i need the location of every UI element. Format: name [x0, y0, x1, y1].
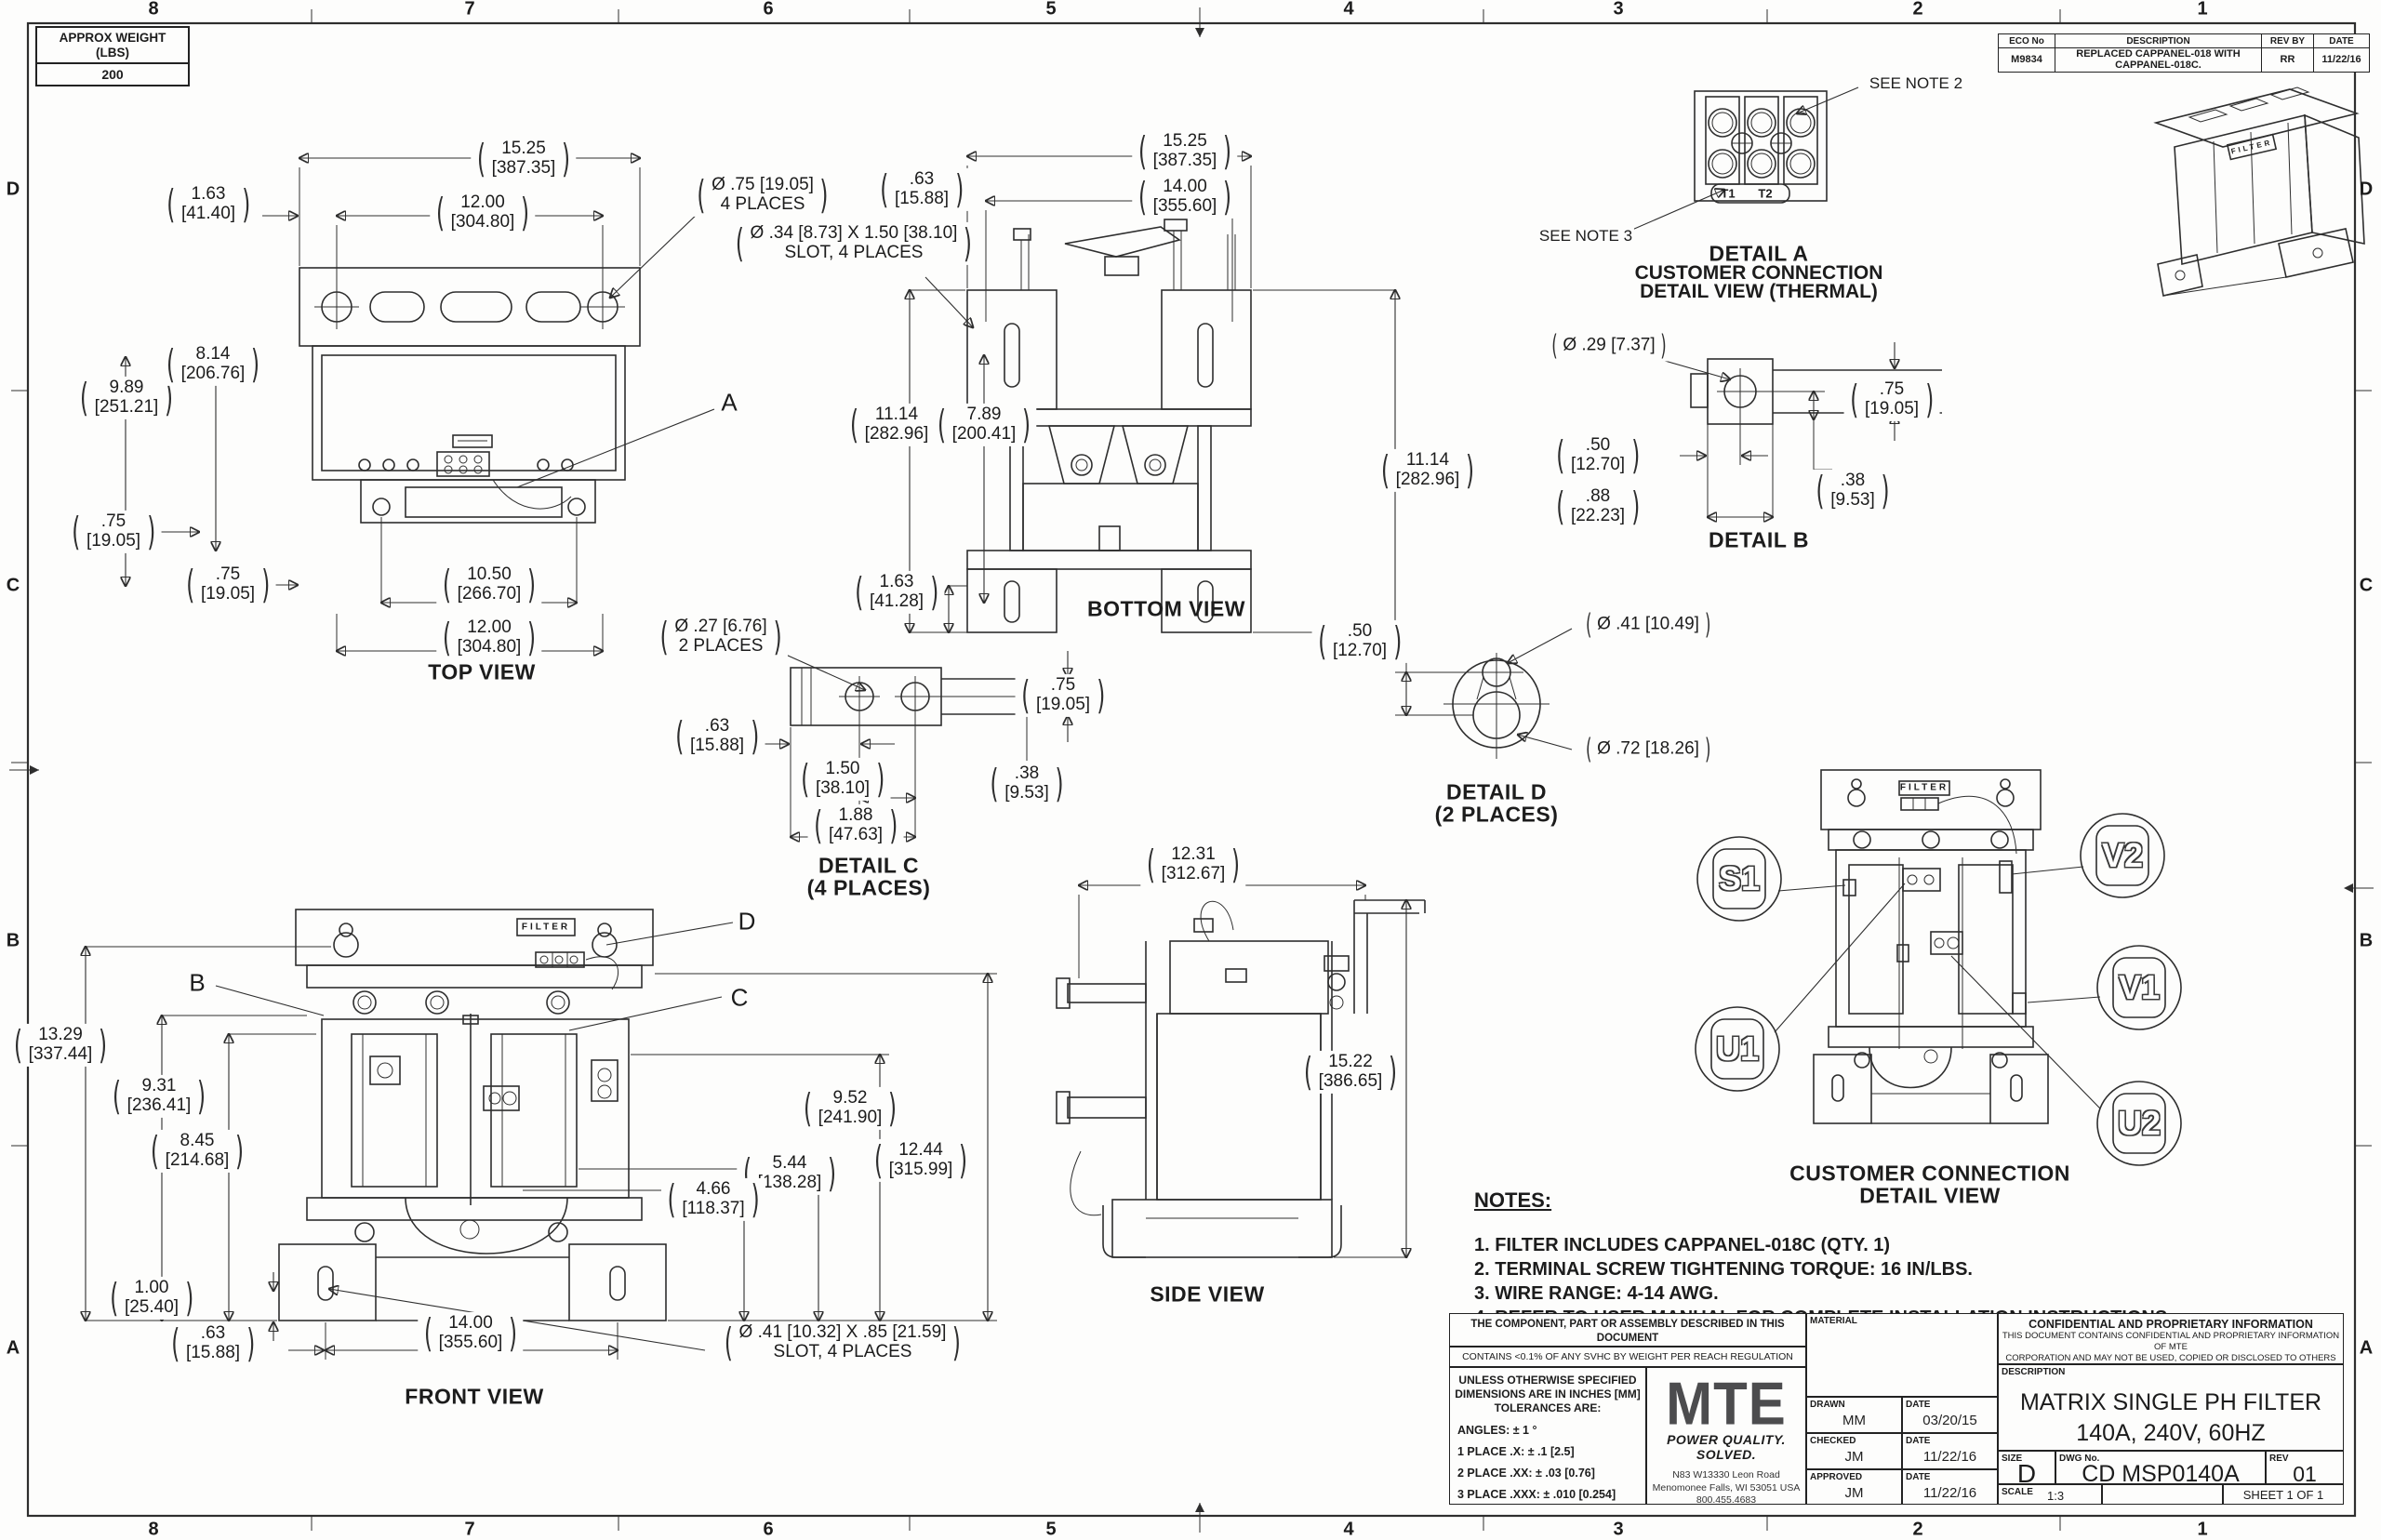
mte-logo: MTE — [1647, 1375, 1805, 1433]
eco-desc: REPLACED CAPPANEL-018 WITH CAPPANEL-018C… — [2055, 48, 2262, 73]
title-block: THE COMPONENT, PART OR ASSEMBLY DESCRIBE… — [1449, 1313, 2344, 1505]
dwg-cell: DWG No. CD MSP0140A — [2055, 1451, 2266, 1484]
filter-nameplate-ccdv: FILTER — [1900, 783, 1949, 793]
callout-dia29: (Ø .29 [7.37]) — [1547, 331, 1672, 362]
description-line1: MATRIX SINGLE PH FILTER — [1999, 1387, 2343, 1418]
dim-top-bolt-span: (10.50[266.70]) — [436, 564, 541, 606]
section-label-d: D — [736, 908, 759, 936]
weight-unit: (LBS) — [37, 46, 188, 60]
dim-bottom-slot-span: (14.00[355.60]) — [1132, 176, 1237, 219]
callout-hole-4places: (Ø .75 [19.05]4 PLACES) — [691, 174, 835, 217]
eco-no: M9834 — [1998, 48, 2055, 73]
isometric-view-drawing — [2156, 87, 2364, 296]
zone-col: 2 — [1912, 1520, 1922, 1540]
zone-row: A — [7, 1338, 20, 1360]
balloon-v1: V1 — [2119, 968, 2160, 1007]
dim-detd-50: (.50[12.70]) — [1312, 620, 1408, 663]
ccdv-title1: CUSTOMER CONNECTION — [1789, 1162, 2070, 1187]
dim-front-1329: (13.29[337.44]) — [7, 1024, 113, 1067]
zone-col: 1 — [2197, 0, 2207, 20]
dim-top-offset75b: (.75[19.05]) — [180, 564, 276, 606]
eco-revision-table: ECO No DESCRIPTION REV BY DATE M9834 REP… — [1998, 33, 2370, 73]
customer-connection-drawing — [1696, 770, 2181, 1165]
checked-cell: CHECKED JM — [1806, 1433, 1902, 1469]
approved-value: JM — [1807, 1485, 1901, 1501]
dim-front-1244: (12.44[315.99]) — [868, 1139, 973, 1182]
size-cell: SIZE D — [1998, 1451, 2055, 1484]
dim-front-100: (1.00[25.40]) — [104, 1277, 200, 1320]
dim-detc-63: (.63[15.88]) — [670, 715, 765, 758]
zone-col: 7 — [464, 0, 474, 20]
zone-col: 4 — [1343, 1520, 1353, 1540]
approved-date-cell: DATE 11/22/16 — [1902, 1469, 1998, 1505]
zone-col: 5 — [1045, 0, 1056, 20]
drawn-value: MM — [1807, 1413, 1901, 1428]
zone-row: C — [2360, 576, 2373, 597]
zone-col: 6 — [763, 1520, 773, 1540]
tol-1place: 1 PLACE .X: ± .1 [2.5] — [1457, 1445, 1645, 1458]
top-view-title: TOP VIEW — [428, 660, 536, 685]
eco-header-desc: DESCRIPTION — [2055, 33, 2262, 48]
description-line2: 140A, 240V, 60HZ — [1999, 1418, 2343, 1449]
detail-b-title: DETAIL B — [1709, 528, 1809, 553]
bottom-view-drawing — [910, 156, 1395, 632]
approved-cell: APPROVED JM — [1806, 1469, 1902, 1505]
balloon-s1: S1 — [1719, 859, 1760, 898]
dim-front-63: (.63[15.88]) — [166, 1322, 261, 1365]
notes-heading: NOTES: — [1474, 1188, 2173, 1213]
front-view-title: FRONT VIEW — [405, 1385, 543, 1410]
dim-side-1231: (12.31[312.67]) — [1140, 843, 1245, 886]
eco-date: 11/22/16 — [2314, 48, 2370, 73]
eco-header-revby: REV BY — [2262, 33, 2314, 48]
drawn-cell: DRAWN MM — [1806, 1397, 1902, 1433]
tol-2place: 2 PLACE .XX: ± .03 [0.76] — [1457, 1467, 1645, 1480]
eco-revby: RR — [2262, 48, 2314, 73]
dim-detc-150: (1.50[38.10]) — [795, 758, 891, 801]
callout-slot-4places: (Ø .34 [8.73] X 1.50 [38.10]SLOT, 4 PLAC… — [729, 222, 978, 265]
mte-address: N83 W13330 Leon Road Menomonee Falls, WI… — [1647, 1469, 1805, 1505]
dim-front-931: (9.31[236.41]) — [106, 1075, 211, 1118]
balloon-v2: V2 — [2102, 836, 2143, 875]
detail-c-sub: (4 PLACES) — [807, 876, 931, 901]
dim-top-depth2: (8.14[206.76]) — [160, 343, 265, 386]
note-item: 2. TERMINAL SCREW TIGHTENING TORQUE: 16 … — [1474, 1257, 2173, 1281]
dim-detb-50: (.50[12.70]) — [1550, 434, 1646, 477]
dim-bottom-foot: (1.63[41.28]) — [849, 571, 945, 614]
zone-row: B — [2360, 931, 2373, 952]
zone-row: D — [2360, 179, 2373, 201]
dim-front-1400: (14.00[355.60]) — [418, 1312, 523, 1355]
side-view-title: SIDE VIEW — [1150, 1282, 1264, 1308]
zone-row: A — [2360, 1338, 2373, 1360]
drawing-sheet: 8 7 6 5 4 3 2 1 8 7 6 5 4 3 2 1 D C B A … — [0, 0, 2381, 1540]
detail-b-drawing — [1639, 342, 1942, 517]
dim-detb-88: (.88[22.23]) — [1550, 485, 1646, 528]
dim-top-edge-offset: (1.63[41.40]) — [161, 183, 257, 226]
zone-col: 5 — [1045, 1520, 1056, 1540]
detail-d-sub: (2 PLACES) — [1435, 803, 1559, 828]
callout-dia27: (Ø .27 [6.76]2 PLACES) — [654, 616, 788, 658]
zone-col: 3 — [1613, 0, 1623, 20]
tolerance-block: UNLESS OTHERWISE SPECIFIED DIMENSIONS AR… — [1449, 1367, 1646, 1505]
sheet-cell: SHEET 1 OF 1 — [2223, 1484, 2344, 1505]
notes-block: NOTES: 1. FILTER INCLUDES CAPPANEL-018C … — [1474, 1188, 2173, 1330]
zone-col: 8 — [148, 0, 158, 20]
note-item: 3. WIRE RANGE: 4-14 AWG. — [1474, 1281, 2173, 1306]
drawn-date-cell: DATE 03/20/15 — [1902, 1397, 1998, 1433]
callout-front-slot: (Ø .41 [10.32] X .85 [21.59]SLOT, 4 PLAC… — [718, 1321, 967, 1364]
detail-c-title: DETAIL C — [818, 854, 919, 879]
weight-title: APPROX WEIGHT — [37, 31, 188, 46]
zone-col: 4 — [1343, 0, 1353, 20]
zone-col: 6 — [763, 0, 773, 20]
checked-value: JM — [1807, 1449, 1901, 1465]
tol-angles: ANGLES: ± 1 ° — [1457, 1424, 1645, 1437]
zone-row: C — [7, 576, 20, 597]
section-label-a: A — [718, 389, 739, 418]
zone-col: 8 — [148, 1520, 158, 1540]
size-value: D — [1999, 1459, 2055, 1484]
detail-d-drawing — [1395, 629, 1572, 759]
scale-value: 1:3 — [2047, 1489, 2064, 1503]
rev-value: 01 — [2267, 1462, 2343, 1484]
dim-top-offset75a: (.75[19.05]) — [66, 511, 162, 553]
dim-detc-75: (.75[19.05]) — [1016, 674, 1111, 717]
scale-cell: SCALE 1:3 — [1998, 1484, 2102, 1505]
tol-3place: 3 PLACE .XXX: ± .010 [0.254] — [1457, 1488, 1645, 1501]
rev-cell: REV 01 — [2266, 1451, 2344, 1484]
confidential-cell: CONFIDENTIAL AND PROPRIETARY INFORMATION… — [1998, 1313, 2344, 1364]
dim-bottom-slot-height: (7.89[200.41]) — [931, 404, 1036, 446]
dim-bottom-offset63: (.63[15.88]) — [874, 168, 970, 211]
material-cell: MATERIAL — [1806, 1313, 1998, 1397]
dim-top-hole-span: (12.00[304.80]) — [430, 192, 535, 234]
detail-a-drawing — [1626, 87, 1858, 232]
drawn-date: 03/20/15 — [1903, 1413, 1997, 1428]
dim-top-span2: (12.00[304.80]) — [436, 617, 541, 659]
see-note-2-label: SEE NOTE 2 — [1868, 74, 1964, 93]
zone-col: 2 — [1912, 0, 1922, 20]
dwg-number: CD MSP0140A — [2056, 1461, 2265, 1484]
rohs-statement: THE COMPONENT, PART OR ASSEMBLY DESCRIBE… — [1449, 1313, 1806, 1347]
dim-front-952: (9.52[241.90]) — [797, 1087, 902, 1130]
mte-logo-block: MTE POWER QUALITY. SOLVED. N83 W13330 Le… — [1646, 1367, 1806, 1505]
zone-row: B — [7, 931, 20, 952]
note-item: 1. FILTER INCLUDES CAPPANEL-018C (QTY. 1… — [1474, 1233, 2173, 1257]
reach-statement: CONTAINS <0.1% OF ANY SVHC BY WEIGHT PER… — [1449, 1347, 1806, 1367]
dim-detb-75: (.75[19.05]) — [1844, 378, 1940, 421]
dim-top-overall-width: (15.25[387.35]) — [471, 138, 576, 180]
checked-date: 11/22/16 — [1903, 1449, 1997, 1465]
dim-side-1522: (15.22[386.65]) — [1297, 1051, 1403, 1094]
balloon-u2: U2 — [2118, 1104, 2161, 1143]
checked-date-cell: DATE 11/22/16 — [1902, 1433, 1998, 1469]
zone-col: 7 — [464, 1520, 474, 1540]
eco-header-date: DATE — [2314, 33, 2370, 48]
bottom-view-title: BOTTOM VIEW — [1087, 597, 1245, 622]
dim-detb-38: (.38[9.53]) — [1810, 470, 1895, 512]
dim-bottom-overall: (15.25[387.35]) — [1132, 130, 1237, 173]
callout-dia72: (Ø .72 [18.26]) — [1580, 735, 1715, 765]
detail-a-sub2: DETAIL VIEW (THERMAL) — [1640, 281, 1878, 303]
description-cell: DESCRIPTION MATRIX SINGLE PH FILTER 140A… — [1998, 1364, 2344, 1451]
approx-weight-box: APPROX WEIGHT (LBS) 200 — [35, 26, 190, 86]
dim-front-845: (8.45[214.68]) — [144, 1130, 249, 1173]
section-label-c: C — [728, 984, 752, 1013]
balloon-u1: U1 — [1716, 1029, 1759, 1069]
callout-dia41: (Ø .41 [10.49]) — [1580, 610, 1715, 641]
see-note-3-label: SEE NOTE 3 — [1537, 227, 1634, 246]
dim-detc-188: (1.88[47.63]) — [808, 804, 904, 847]
eco-header-no: ECO No — [1998, 33, 2055, 48]
scale-spacer — [2102, 1484, 2223, 1505]
zone-col: 3 — [1613, 1520, 1623, 1540]
filter-nameplate-front: FILTER — [522, 923, 570, 933]
approved-date: 11/22/16 — [1903, 1485, 1997, 1501]
weight-value: 200 — [35, 64, 190, 86]
section-label-b: B — [186, 969, 207, 998]
detail-d-title: DETAIL D — [1446, 780, 1547, 805]
zone-col: 1 — [2197, 1520, 2207, 1540]
terminal-t1-label: T1 — [1721, 187, 1735, 201]
dim-detc-38: (.38[9.53]) — [984, 763, 1070, 805]
dim-front-466: (4.66[118.37]) — [661, 1178, 765, 1221]
terminal-t2-label: T2 — [1758, 187, 1772, 201]
zone-row: D — [7, 179, 20, 201]
dim-bottom-height-r: (11.14[282.96]) — [1375, 449, 1480, 492]
